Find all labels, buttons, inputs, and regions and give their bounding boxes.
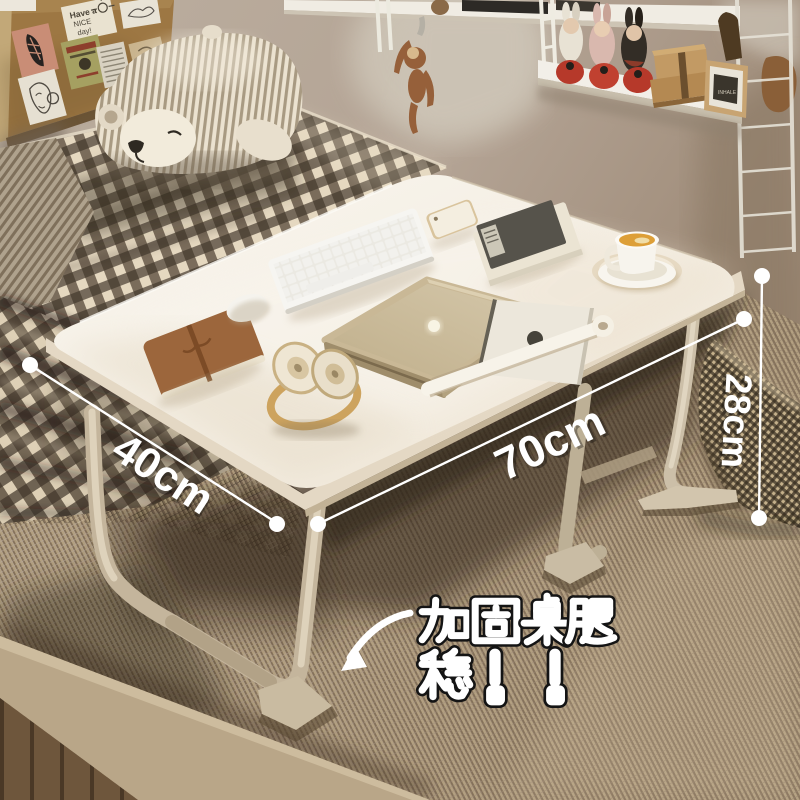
svg-text:INHALE: INHALE [718, 90, 737, 96]
svg-text:28cm: 28cm [714, 373, 760, 470]
